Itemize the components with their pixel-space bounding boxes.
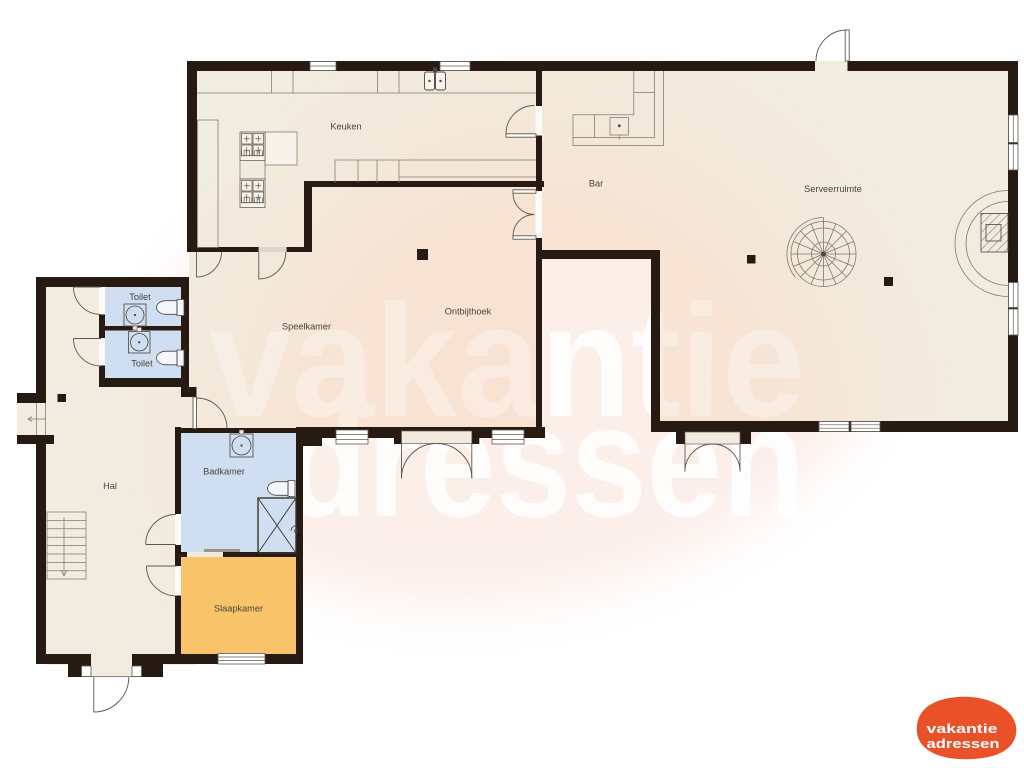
- svg-text:Slaapkamer: Slaapkamer: [214, 604, 263, 614]
- svg-text:vakantie: vakantie: [927, 722, 998, 736]
- svg-text:Bar: Bar: [589, 179, 603, 189]
- svg-text:adressen: adressen: [927, 737, 1000, 751]
- svg-text:Ontbijthoek: Ontbijthoek: [445, 307, 492, 317]
- svg-text:Badkamer: Badkamer: [203, 467, 245, 477]
- svg-text:Speelkamer: Speelkamer: [282, 321, 331, 331]
- svg-text:Keuken: Keuken: [330, 122, 361, 132]
- svg-text:Toilet: Toilet: [129, 292, 151, 302]
- svg-text:Serveerruimte: Serveerruimte: [804, 184, 862, 194]
- svg-text:Hal: Hal: [103, 481, 117, 491]
- svg-text:Toilet: Toilet: [131, 359, 153, 369]
